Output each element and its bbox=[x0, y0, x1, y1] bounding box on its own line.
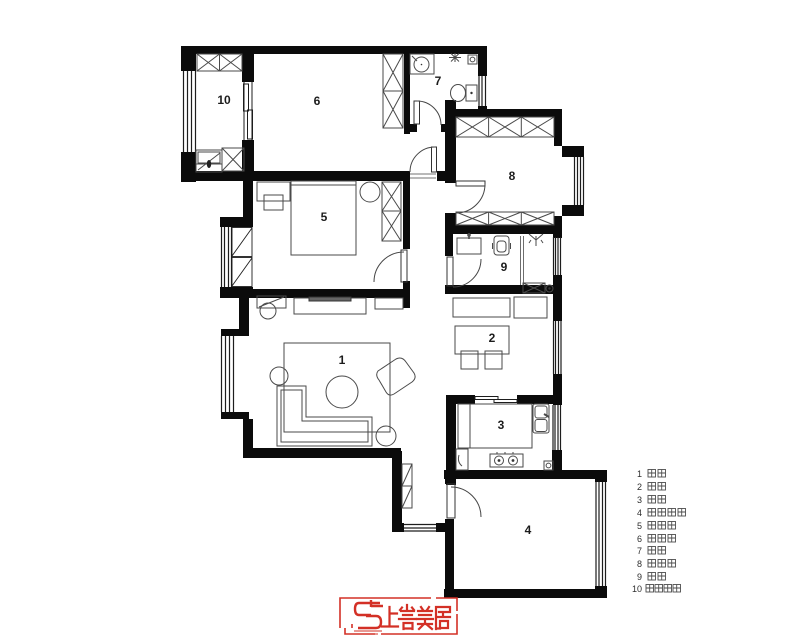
svg-text:10: 10 bbox=[632, 584, 642, 594]
svg-text:10: 10 bbox=[217, 93, 231, 107]
svg-text:1: 1 bbox=[637, 469, 642, 479]
svg-text:8: 8 bbox=[509, 169, 516, 183]
svg-text:1: 1 bbox=[339, 353, 346, 367]
svg-text:7: 7 bbox=[435, 74, 442, 88]
svg-text:3: 3 bbox=[637, 495, 642, 505]
svg-text:9: 9 bbox=[501, 260, 508, 274]
svg-text:6: 6 bbox=[314, 94, 321, 108]
svg-text:9: 9 bbox=[637, 572, 642, 582]
svg-text:4: 4 bbox=[525, 523, 532, 537]
svg-text:5: 5 bbox=[637, 521, 642, 531]
svg-text:6: 6 bbox=[637, 534, 642, 544]
svg-text:5: 5 bbox=[321, 210, 328, 224]
svg-text:7: 7 bbox=[637, 546, 642, 556]
svg-text:4: 4 bbox=[637, 508, 642, 518]
svg-text:3: 3 bbox=[498, 418, 505, 432]
svg-text:2: 2 bbox=[489, 331, 496, 345]
svg-text:8: 8 bbox=[637, 559, 642, 569]
svg-text:2: 2 bbox=[637, 482, 642, 492]
